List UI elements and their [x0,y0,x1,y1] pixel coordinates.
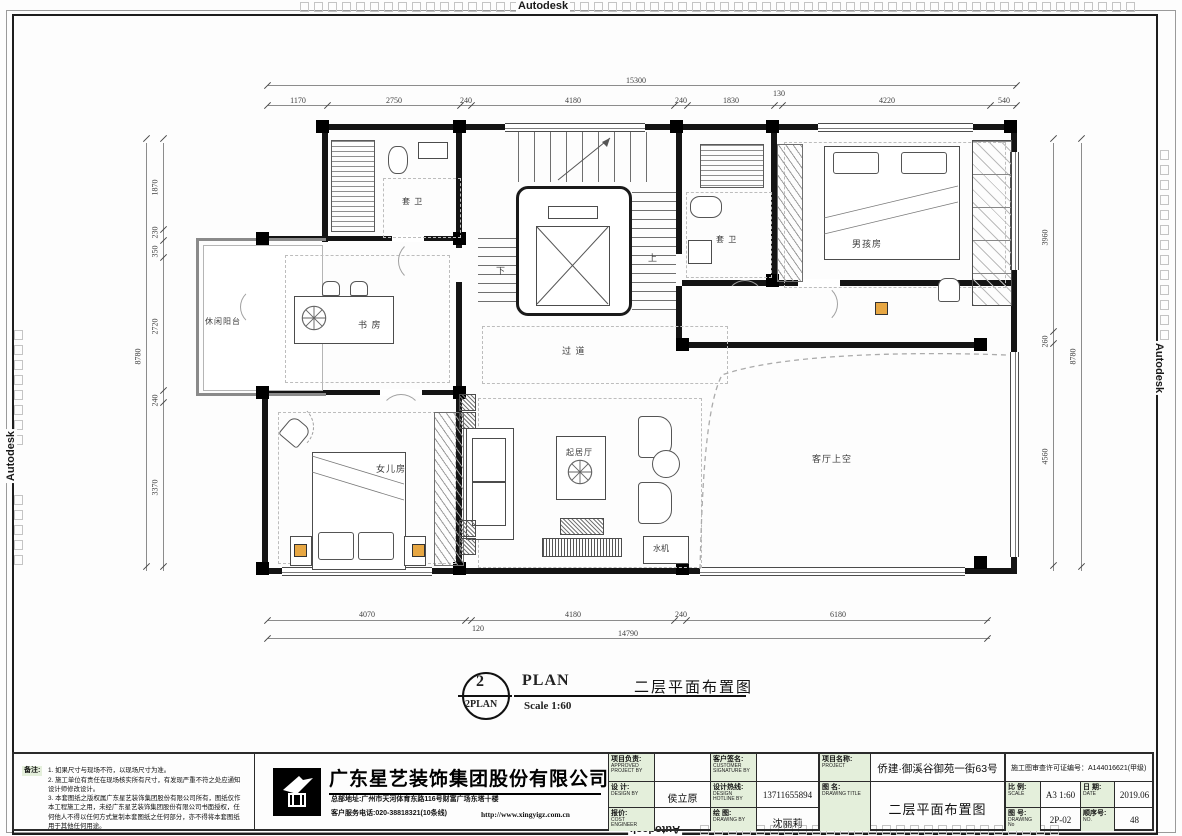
room-label-daughters-room: 女儿房 [376,462,406,475]
hotline-label-en: DESIGN HOTLINE BY [713,792,754,804]
dim-line [268,105,1017,106]
door-arc [380,394,422,436]
bed-fold-lines [824,178,958,238]
design-label-en: DESIGN BY [611,792,652,798]
seq-label-en: NO. [1083,818,1112,824]
dim-line [268,620,990,621]
pillow [358,532,394,560]
pillow [833,152,879,174]
dim-line [268,638,990,639]
date-label-en: DATE [1083,792,1112,798]
date-value-cell: 2019.06 [1114,781,1154,807]
plan-number: 2 [476,673,484,691]
company-logo-house-icon [273,768,321,816]
dim-overall-bottom: 14790 [610,629,646,638]
dim-label: 4180 [555,96,591,105]
wardrobe [972,140,1012,306]
window [505,123,645,132]
dim-label: 6180 [820,610,856,619]
date-label-cell: 日 期: DATE [1080,781,1114,807]
dim-label: 350 [151,235,160,269]
column-marker [316,120,329,133]
drawing-title-label-cell: 图 名: DRAWING TITLE [818,781,870,831]
toilet [388,146,408,174]
elevator-vent [548,206,598,219]
column-marker [670,120,683,133]
wall [322,124,328,242]
dim-label: 540 [986,96,1022,105]
door-arc [268,404,314,450]
hotline-label-cell: 设计热线: DESIGN HOTLINE BY [710,781,756,807]
plan-title-cn: 二层平面布置图 [634,676,753,697]
room-label-bath-right: 套 卫 [716,234,737,245]
dim-overall-left: 8780 [134,340,143,374]
elevator-cross [536,226,609,305]
seq-label-cell: 顺序号: NO. [1080,807,1114,831]
dim-label: 4070 [349,610,385,619]
stair-down-label: 下 [496,264,506,277]
seq-value-cell: 48 [1114,807,1154,831]
column-marker [256,232,269,245]
drawing-no-label-cell: 图 号: DRAWING No [1004,807,1040,831]
project-value-cell: 侨建·御溪谷御苑一街63号 [870,754,1004,781]
drawing-no-label-en: DRAWING No [1008,818,1038,830]
note-line: 1. 如果尺寸与现场不符，以现场尺寸为准。 [48,766,244,775]
project-value: 侨建·御溪谷御苑一街63号 [871,761,1004,776]
project-label-en: PROJECT [822,764,868,770]
room-label-bath-left: 套 卫 [402,196,423,207]
dim-line [1081,143,1082,571]
ceiling-outline [383,178,461,238]
dim-line [146,143,147,571]
room-label-balcony: 休闲阳台 [205,316,241,327]
vent [459,394,476,411]
room-label-void: 客厅上空 [812,452,852,465]
wall-light [294,544,307,557]
dim-label: 130 [761,89,797,98]
dim-label: 1170 [280,96,316,105]
dim-label: 3370 [151,471,160,505]
scale-label-en: SCALE [1008,792,1038,798]
company-name: 广东星艺装饰集团股份有限公司 [329,764,601,795]
window [818,123,973,132]
dim-line [1053,143,1054,571]
pillow [318,532,354,560]
company-website: http://www.xingyigz.com.cn [481,810,570,819]
wall [456,282,462,394]
hotline-value-cell: 13711655894 [756,781,818,807]
drawnby-value-cell: 沈丽莉 [756,807,818,831]
drawnby-label-cell: 绘 图: DRAWING BY [710,807,756,831]
dim-label: 240 [663,96,699,105]
sofa-cushion [472,438,506,482]
sink [688,240,712,264]
wall [682,280,777,286]
door-arc [798,284,838,324]
plan-ref: 2PLAN [465,699,497,710]
pillow [901,152,947,174]
sink [418,142,448,159]
company-box: 广东星艺装饰集团股份有限公司 总部地址:广州市天河体育东路116号财富广场东塔十… [254,754,608,831]
dim-label: 260 [1041,325,1050,359]
drawing-title-value-cell: 二层平面布置图 [870,781,1004,831]
note-line: 3. 本套图纸之版权属广东星艺装饰集团股份有限公司所有，图纸仅作本工程施工之用，… [48,794,244,831]
tv [560,518,604,535]
scale-value-cell: A3 1:60 [1040,781,1080,807]
room-label-boys-room: 男孩房 [852,237,882,250]
dim-overall-top: 15300 [618,76,654,85]
notes-label: 备注: [22,766,42,776]
company-address: 总部地址:广州市天河体育东路116号财富广场东塔十楼 [331,794,499,804]
cost-value-cell [654,807,710,831]
wall-light [412,544,425,557]
customer-value-cell [756,754,818,781]
plant-flower [300,304,328,332]
dim-label: 120 [460,624,496,633]
scale-value: A3 1:60 [1041,790,1080,800]
design-value-cell: 侯立原 [654,781,710,807]
side-table-round [652,450,680,478]
dim-label: 2720 [151,310,160,344]
dim-label: 240 [448,96,484,105]
dim-label: 1830 [713,96,749,105]
plan-title-group: 2 2PLAN PLAN Scale 1:60 二层平面布置图 [440,664,780,724]
scale-label-cell: 比 例: SCALE [1004,781,1040,807]
notes-box: 备注: 1. 如果尺寸与现场不符，以现场尺寸为准。 2. 施工单位有责任在现场核… [14,754,254,829]
closet [777,144,803,282]
tv-bench [542,538,622,557]
drawing-title-label-en: DRAWING TITLE [822,792,868,798]
company-logo [273,768,321,816]
dim-label: 4180 [555,610,591,619]
dim-label: 2750 [376,96,412,105]
sofa-cushion [472,482,506,526]
drawing-no-value: 2P-02 [1041,815,1080,825]
room-label-study: 书 房 [358,318,382,331]
louver-window [331,140,375,232]
toilet [690,196,722,218]
customer-label-cell: 客户签名: CUSTOMER SIGNATURE BY [710,754,756,781]
dim-overall-right: 8780 [1069,340,1078,374]
drawing-no-value-cell: 2P-02 [1040,807,1080,831]
permit-cell: 施工图审查许可证编号：A144016621(甲级) [1004,754,1154,781]
chair [938,278,960,302]
louver-window [700,144,764,188]
stair-up-label: 上 [648,251,658,264]
room-label-water-machine: 水机 [653,543,669,554]
dim-label: 3960 [1041,221,1050,255]
company-phone: 客户服务电话:020-38818321(10条线) [331,808,447,818]
approved-label-en: APPROVED PROJECT BY [611,764,652,776]
drawnby-value: 沈丽莉 [757,815,818,830]
design-label-cell: 设 计: DESIGN BY [608,781,654,807]
plant-flower [566,458,594,486]
column-marker [766,120,779,133]
column-marker [256,562,269,575]
dim-label: 240 [151,384,160,418]
dim-label: 4220 [869,96,905,105]
plan-circle-divider [458,695,512,697]
vent [459,538,476,555]
drawnby-label-en: DRAWING BY [713,818,754,824]
hotline-value: 13711655894 [757,790,818,800]
armchair [638,482,672,524]
wall-light [875,302,888,315]
door-arc [726,280,764,318]
door-arc [398,240,440,282]
permit-text: 施工图审查许可证编号：A144016621(甲级) [1011,763,1154,773]
dim-label: 1870 [151,171,160,205]
drawing-title-value: 二层平面布置图 [871,799,1004,818]
column-marker [1004,120,1017,133]
vent [459,412,476,429]
project-label-cell: 项目名称: PROJECT [818,754,870,781]
dim-label: 240 [663,610,699,619]
stair-direction-arrow [550,132,620,184]
cost-label-cell: 报价: COST ENGINEER [608,807,654,831]
customer-label-en: CUSTOMER SIGNATURE BY [713,764,754,776]
approved-value-cell [654,754,710,781]
dim-line [268,85,1017,86]
design-value: 侯立原 [655,790,710,805]
title-block: 备注: 1. 如果尺寸与现场不符，以现场尺寸为准。 2. 施工单位有责任在现场核… [12,752,1154,831]
date-value: 2019.06 [1115,790,1154,800]
drawing-sheet: Autodesk Autodesk Autodesk Autodesk [0,0,1182,836]
column-marker [453,120,466,133]
column-marker [256,386,269,399]
chair [350,281,368,296]
vent [459,520,476,537]
balcony-wall [196,238,199,396]
wall [676,124,682,254]
note-line: 2. 施工单位有责任在现场核实所有尺寸，有发现严重不符之处应通知设计师修改设计。 [48,776,244,795]
door-arc [240,288,278,326]
dim-label: 4560 [1041,440,1050,474]
cost-label-en: COST ENGINEER [611,818,652,830]
room-label-corridor: 过 道 [562,344,586,357]
plan-scale: Scale 1:60 [524,700,571,712]
chair [322,281,340,296]
plan-title-en: PLAN [522,672,570,690]
room-label-living: 起居厅 [566,447,593,458]
seq-value: 48 [1115,815,1154,825]
dim-line [163,143,164,571]
approved-label-cell: 项目负责: APPROVED PROJECT BY [608,754,654,781]
